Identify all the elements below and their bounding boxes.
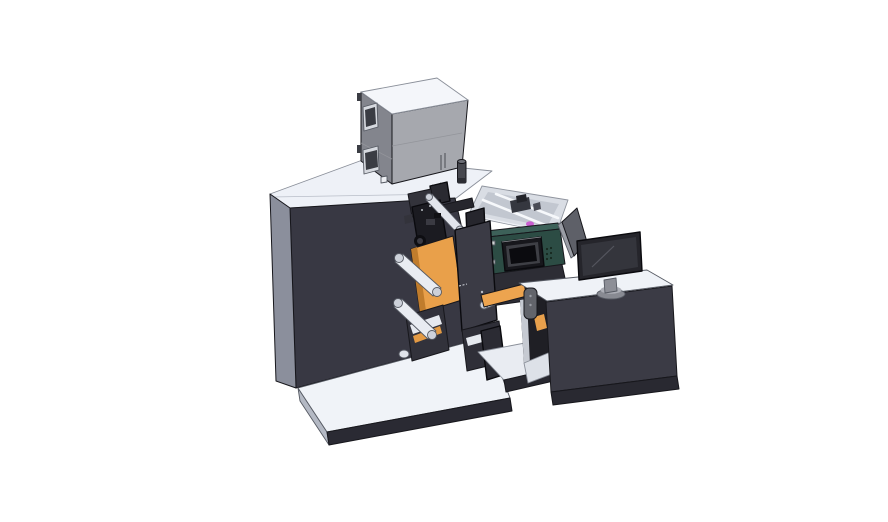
vent-dot bbox=[546, 253, 548, 255]
vent-dot bbox=[550, 247, 552, 249]
cad-render-viewport bbox=[0, 0, 888, 522]
vent-dot bbox=[546, 248, 548, 250]
head-hub-inner bbox=[417, 238, 423, 244]
roller-lower-cap-left bbox=[394, 299, 403, 308]
feeder-hinge-2 bbox=[357, 145, 361, 153]
vent-dot bbox=[550, 257, 552, 259]
release-handle bbox=[524, 288, 537, 319]
cylinder-band bbox=[458, 178, 467, 183]
console-desk bbox=[519, 270, 679, 405]
roller-lower-cap-right bbox=[428, 331, 437, 340]
feeder-window-glass-1 bbox=[365, 107, 376, 127]
monitor-neck bbox=[604, 278, 617, 293]
plate-dot-1 bbox=[481, 291, 483, 293]
head-bolt-2 bbox=[429, 205, 431, 207]
front-mount-plate bbox=[455, 221, 497, 331]
vent-dot bbox=[550, 252, 552, 254]
roller-end-cap-stray bbox=[399, 350, 409, 358]
head-roller-cap-top bbox=[426, 194, 433, 201]
machine-3d-render bbox=[0, 0, 888, 522]
cylinder-top-cap bbox=[458, 160, 466, 164]
console-front-face bbox=[546, 286, 677, 392]
roller-upper-cap-left bbox=[395, 254, 404, 263]
roller-upper-cap-right bbox=[433, 288, 442, 297]
exhaust-cylinder bbox=[458, 160, 467, 184]
head-fitting-1 bbox=[426, 219, 435, 225]
feeder-window-glass-2 bbox=[365, 150, 378, 170]
vent-dot bbox=[546, 258, 548, 260]
head-fitting-2 bbox=[434, 213, 441, 218]
feeder-hinge-1 bbox=[357, 93, 361, 101]
feeder-tag-square bbox=[381, 176, 387, 183]
handle-hole-1 bbox=[529, 295, 531, 297]
feeder-box bbox=[357, 78, 468, 184]
head-bolt-1 bbox=[421, 209, 423, 211]
handle-hole-2 bbox=[529, 304, 531, 306]
